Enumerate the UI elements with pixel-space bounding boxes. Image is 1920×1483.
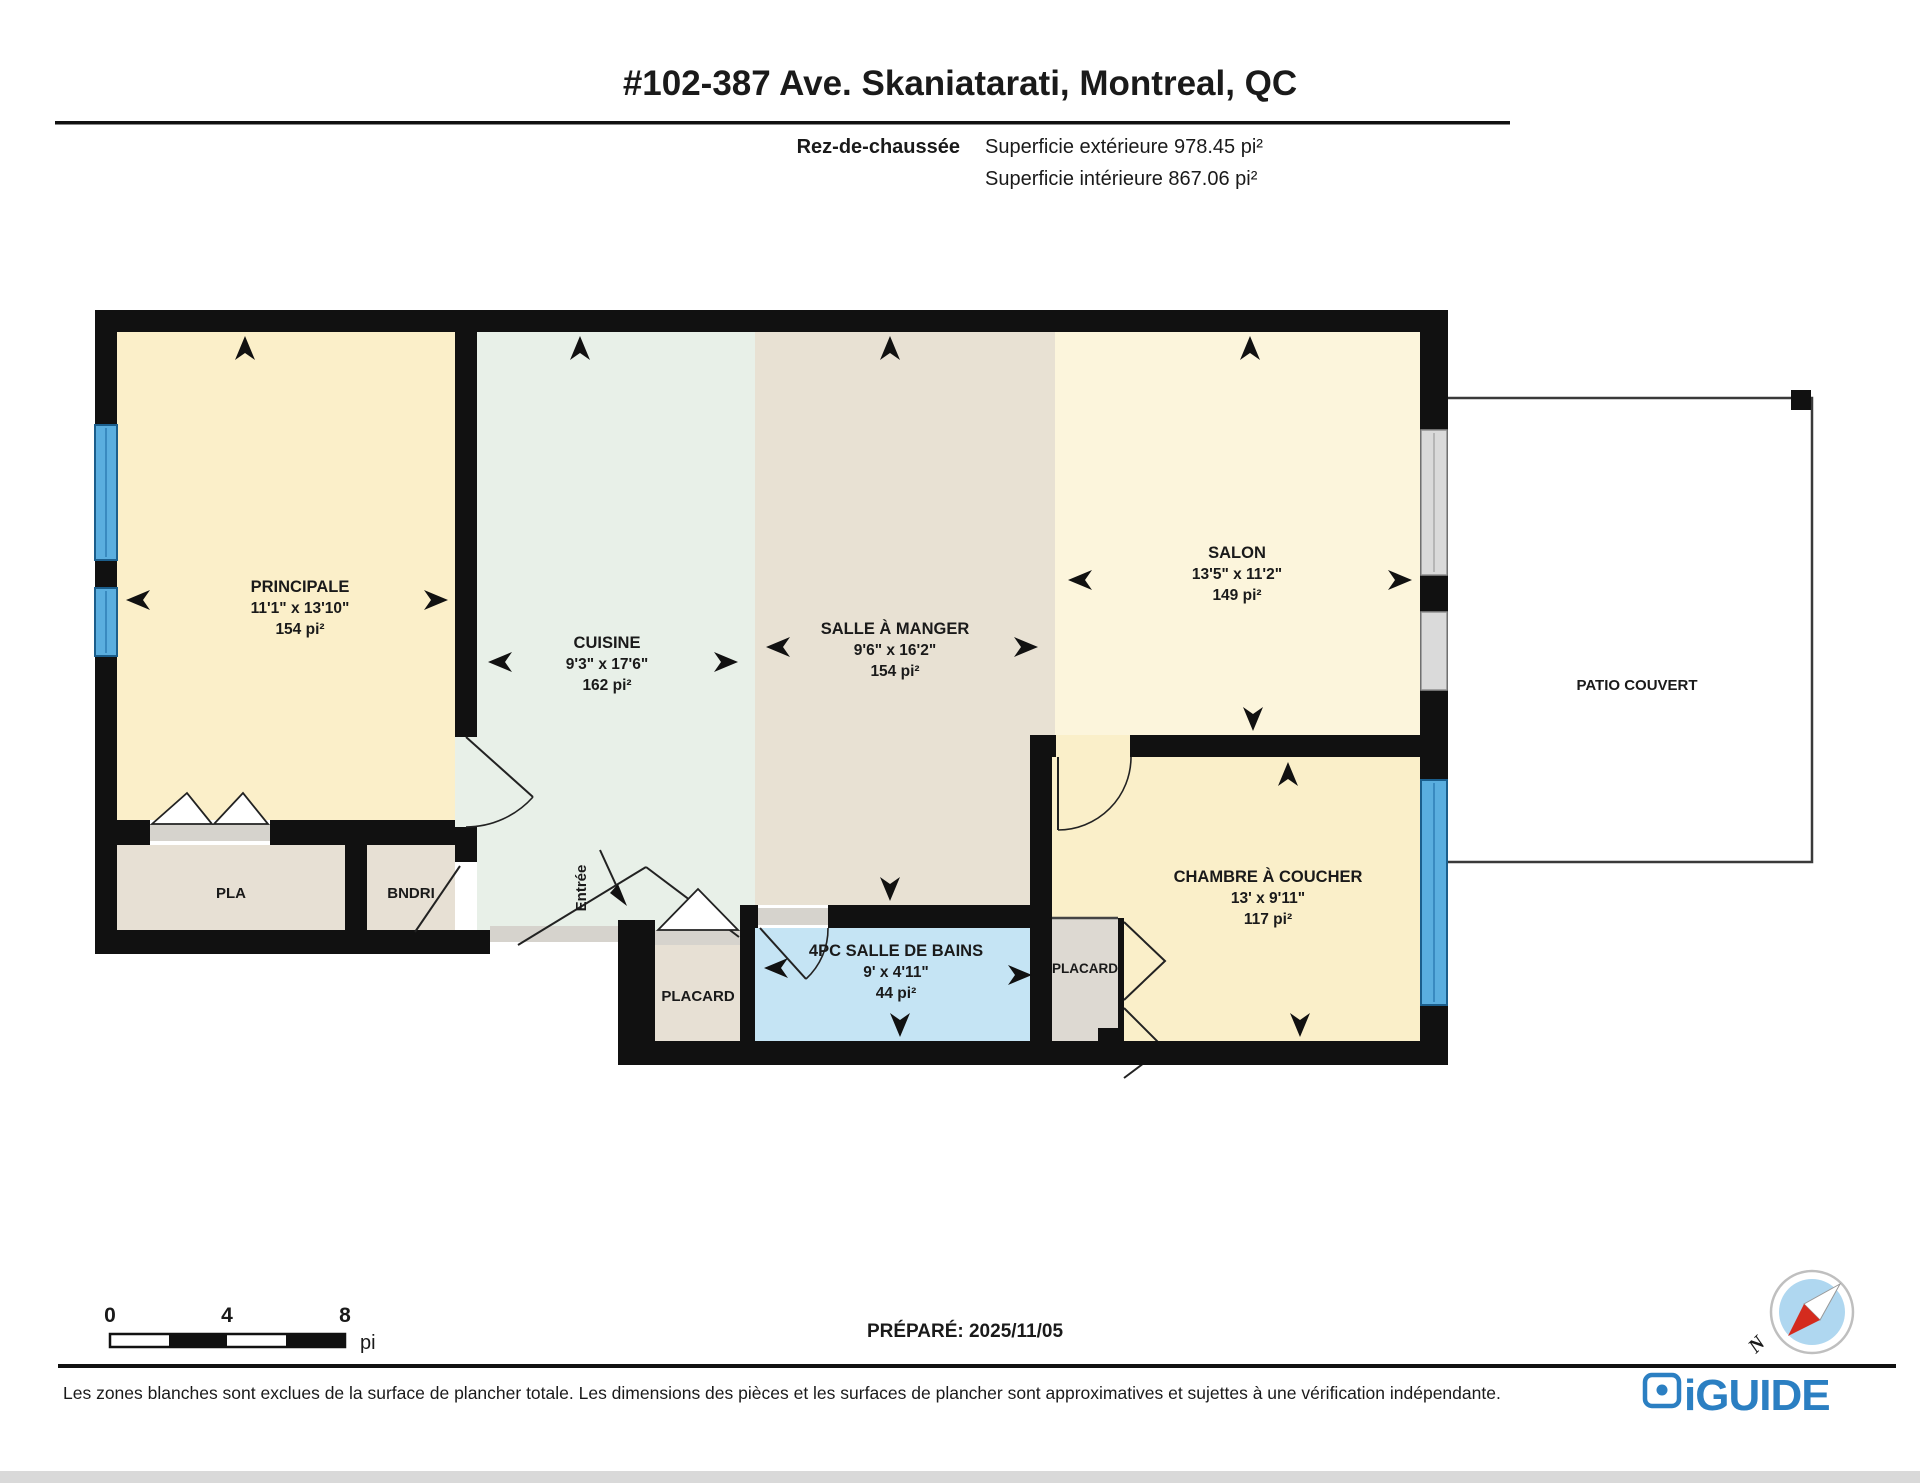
patio-couvert: PATIO COUVERT [1448, 390, 1812, 862]
header-divider [55, 121, 1510, 125]
svg-text:9' x 4'11": 9' x 4'11" [863, 964, 929, 981]
svg-text:8: 8 [339, 1304, 351, 1327]
patio-label: PATIO COUVERT [1576, 677, 1697, 694]
interior-area-label: Superficie intérieure 867.06 pi² [985, 168, 1258, 190]
cuisine-label: CUISINE [574, 634, 641, 652]
iguide-logo: iGUIDE [1645, 1371, 1830, 1420]
svg-text:9'3" x 17'6": 9'3" x 17'6" [566, 656, 648, 673]
disclaimer-text: Les zones blanches sont exclues de la su… [63, 1383, 1501, 1403]
cuisine-floor [477, 332, 755, 933]
salle-de-bains-label: 4PC SALLE DE BAINS [809, 942, 983, 960]
floorplan-canvas: #102-387 Ave. Skaniatarati, Montreal, QC… [0, 0, 1920, 1483]
pla-label: PLA [216, 885, 246, 902]
patio-corner-marker [1791, 390, 1811, 410]
placard1-label: PLACARD [661, 988, 734, 1005]
svg-text:4: 4 [221, 1304, 233, 1327]
principale-floor [117, 332, 455, 820]
svg-text:11'1" x 13'10": 11'1" x 13'10" [251, 600, 350, 617]
iguide-logo-text: iGUIDE [1684, 1371, 1830, 1420]
svg-text:13' x 9'11": 13' x 9'11" [1231, 890, 1305, 907]
pla-opening-sill [150, 824, 270, 841]
svg-text:162 pi²: 162 pi² [582, 677, 631, 694]
svg-text:154 pi²: 154 pi² [275, 621, 324, 638]
svg-text:13'5" x 11'2": 13'5" x 11'2" [1192, 566, 1282, 583]
svg-text:44 pi²: 44 pi² [876, 985, 916, 1002]
entree-label: Entrée [573, 865, 590, 912]
salle-a-manger-label: SALLE À MANGER [821, 619, 970, 638]
svg-text:149 pi²: 149 pi² [1212, 587, 1261, 604]
chambre-label: CHAMBRE À COUCHER [1174, 867, 1363, 886]
bath-door-sill [758, 908, 828, 925]
page-edge [0, 1471, 1920, 1483]
svg-text:0: 0 [104, 1304, 116, 1327]
scale-bar: 0 4 8 pi [104, 1304, 375, 1354]
compass-rose: N [1743, 1271, 1853, 1358]
principale-label: PRINCIPALE [251, 578, 350, 596]
floorplan-page: #102-387 Ave. Skaniatarati, Montreal, QC… [0, 0, 1920, 1483]
patio-door-icon [1421, 612, 1447, 690]
salon-floor [1055, 332, 1420, 735]
salle-a-manger-floor [755, 332, 1055, 905]
floor-label: Rez-de-chaussée [797, 136, 960, 158]
svg-text:117 pi²: 117 pi² [1244, 911, 1292, 928]
page-title: #102-387 Ave. Skaniatarati, Montreal, QC [623, 64, 1297, 103]
prepared-date: PRÉPARÉ: 2025/11/05 [867, 1320, 1064, 1342]
entry-sill [490, 926, 618, 942]
bndri-label: BNDRI [387, 885, 435, 902]
placard1-sill [655, 930, 740, 945]
footer-divider [58, 1364, 1896, 1368]
placard2-floor [1052, 918, 1118, 1043]
svg-text:154 pi²: 154 pi² [870, 663, 919, 680]
exterior-area-label: Superficie extérieure 978.45 pi² [985, 136, 1263, 158]
scale-unit: pi [360, 1332, 376, 1354]
placard2-label: PLACARD [1052, 961, 1118, 976]
compass-north-label: N [1743, 1331, 1771, 1359]
salon-label: SALON [1208, 544, 1266, 562]
svg-text:9'6" x 16'2": 9'6" x 16'2" [854, 642, 936, 659]
